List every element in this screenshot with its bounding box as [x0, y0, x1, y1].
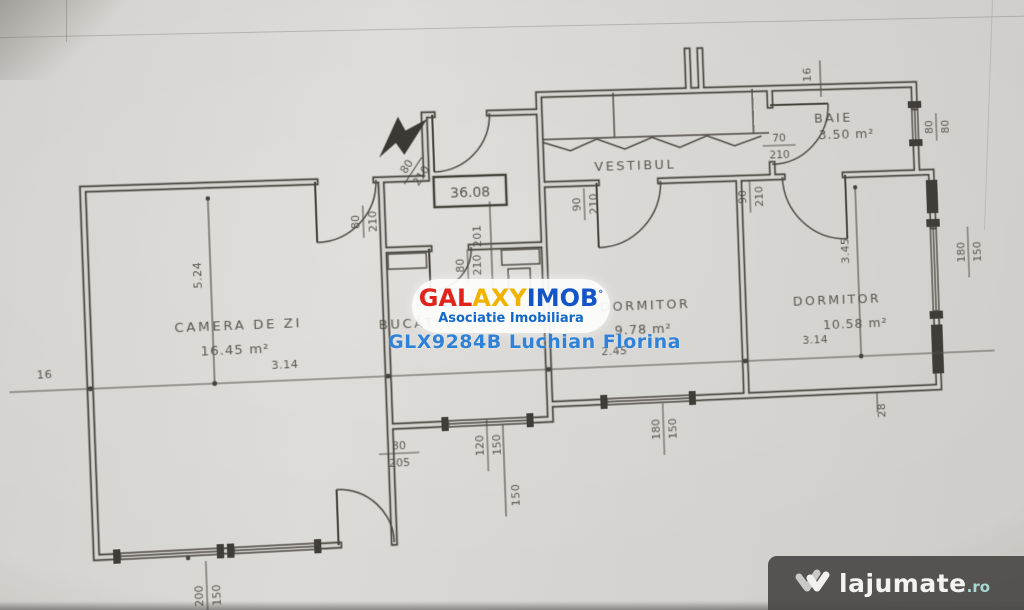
svg-text:90: 90: [570, 197, 583, 211]
svg-text:150: 150: [666, 418, 679, 439]
svg-text:150: 150: [971, 241, 984, 262]
site-logo-text: lajumate.ro: [839, 569, 990, 598]
size-bath-door: 70210: [762, 131, 796, 161]
svg-text:210: 210: [753, 186, 766, 207]
room-label-vestibule: VESTIBUL: [594, 158, 676, 175]
size-living-door: 80210: [349, 205, 380, 238]
svg-text:80: 80: [392, 439, 407, 453]
size-bedroom1-window: 180150: [649, 403, 680, 456]
agency-subtitle: Asociatie Imobiliara: [438, 312, 584, 326]
svg-text:80: 80: [454, 258, 467, 272]
svg-text:70: 70: [772, 132, 786, 145]
closet-lines: [542, 88, 770, 151]
svg-text:180: 180: [955, 242, 968, 263]
room-label-bedroom2: DORMITOR: [793, 292, 882, 310]
svg-text:210: 210: [769, 148, 790, 161]
size-balcony-door: 80205: [378, 438, 420, 470]
room-label-bedroom1: DORMITOR: [600, 297, 690, 315]
dim-bedroom2-width: 3.14: [802, 333, 828, 347]
dim-sill: 150: [509, 483, 523, 506]
agency-logo: GALAXYIMOB°: [419, 286, 604, 311]
room-label-bath: BAIE: [814, 111, 853, 127]
total-area-value: 36.08: [450, 184, 491, 201]
svg-text:210: 210: [366, 211, 380, 233]
dim-corridor: 201: [471, 224, 485, 247]
agent-watermark: GLX9284B Luchian Florina: [388, 331, 681, 353]
room-label-living: CAMERA DE ZI: [174, 316, 302, 336]
dim-wall-top: 16: [801, 67, 814, 82]
dim-living-height: 5.24: [191, 262, 205, 289]
svg-text:210: 210: [471, 254, 485, 275]
size-bath-window: 8080: [923, 113, 952, 141]
dim-wall-left: 16: [37, 368, 53, 382]
svg-text:80: 80: [349, 215, 363, 230]
svg-text:150: 150: [490, 434, 504, 456]
dim-right-offset: 28: [876, 403, 889, 418]
size-kitchen-window: 120150: [473, 418, 505, 471]
floorplan-photo: 36.08 CAMERA DE ZI 16.45 m² BUCĂT. VESTI…: [0, 0, 1024, 610]
paper-corner-shadow: [0, 0, 140, 80]
svg-text:180: 180: [650, 419, 663, 440]
size-kitchen-door: 80210: [453, 249, 484, 282]
paper-crease: [66, 0, 67, 42]
site-logo-icon: [794, 569, 830, 597]
agency-watermark: GALAXYIMOB° Asociatie Imobiliara: [412, 279, 610, 333]
svg-text:210: 210: [587, 193, 600, 214]
svg-text:80: 80: [923, 120, 936, 134]
room-area-bedroom2: 10.58 m²: [823, 316, 888, 333]
size-bedroom2-window: 180150: [954, 226, 984, 278]
site-watermark: lajumate.ro: [768, 556, 1024, 610]
total-area-box: 36.08: [433, 175, 506, 207]
svg-text:120: 120: [473, 435, 487, 457]
dim-bedroom2-height: 3.45: [839, 237, 852, 263]
dim-living-width: 3.14: [271, 358, 299, 372]
svg-text:90: 90: [736, 190, 749, 204]
svg-text:80: 80: [939, 120, 952, 134]
svg-text:80: 80: [397, 157, 416, 176]
room-area-bath: 3.50 m²: [818, 127, 874, 143]
room-area-living: 16.45 m²: [200, 342, 270, 360]
svg-text:205: 205: [389, 456, 411, 470]
